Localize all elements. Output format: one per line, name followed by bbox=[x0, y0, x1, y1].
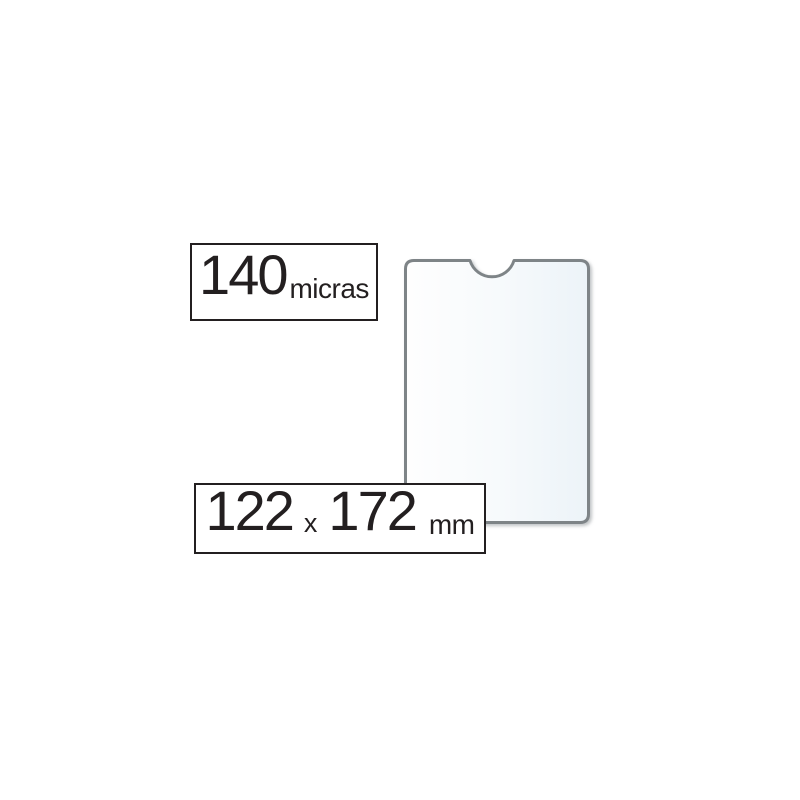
dimensions-badge: 122 x 172 mm bbox=[194, 483, 486, 554]
dimension-unit: mm bbox=[429, 511, 475, 539]
dimension-width-value: 122 bbox=[205, 483, 292, 539]
thickness-unit: micras bbox=[289, 275, 368, 303]
thickness-value: 140 bbox=[199, 247, 286, 303]
product-image: 140 micras 122 x 172 mm bbox=[0, 0, 800, 800]
multiply-sign: x bbox=[304, 510, 318, 537]
dimension-height-value: 172 bbox=[328, 483, 415, 539]
thickness-badge: 140 micras bbox=[190, 243, 378, 321]
